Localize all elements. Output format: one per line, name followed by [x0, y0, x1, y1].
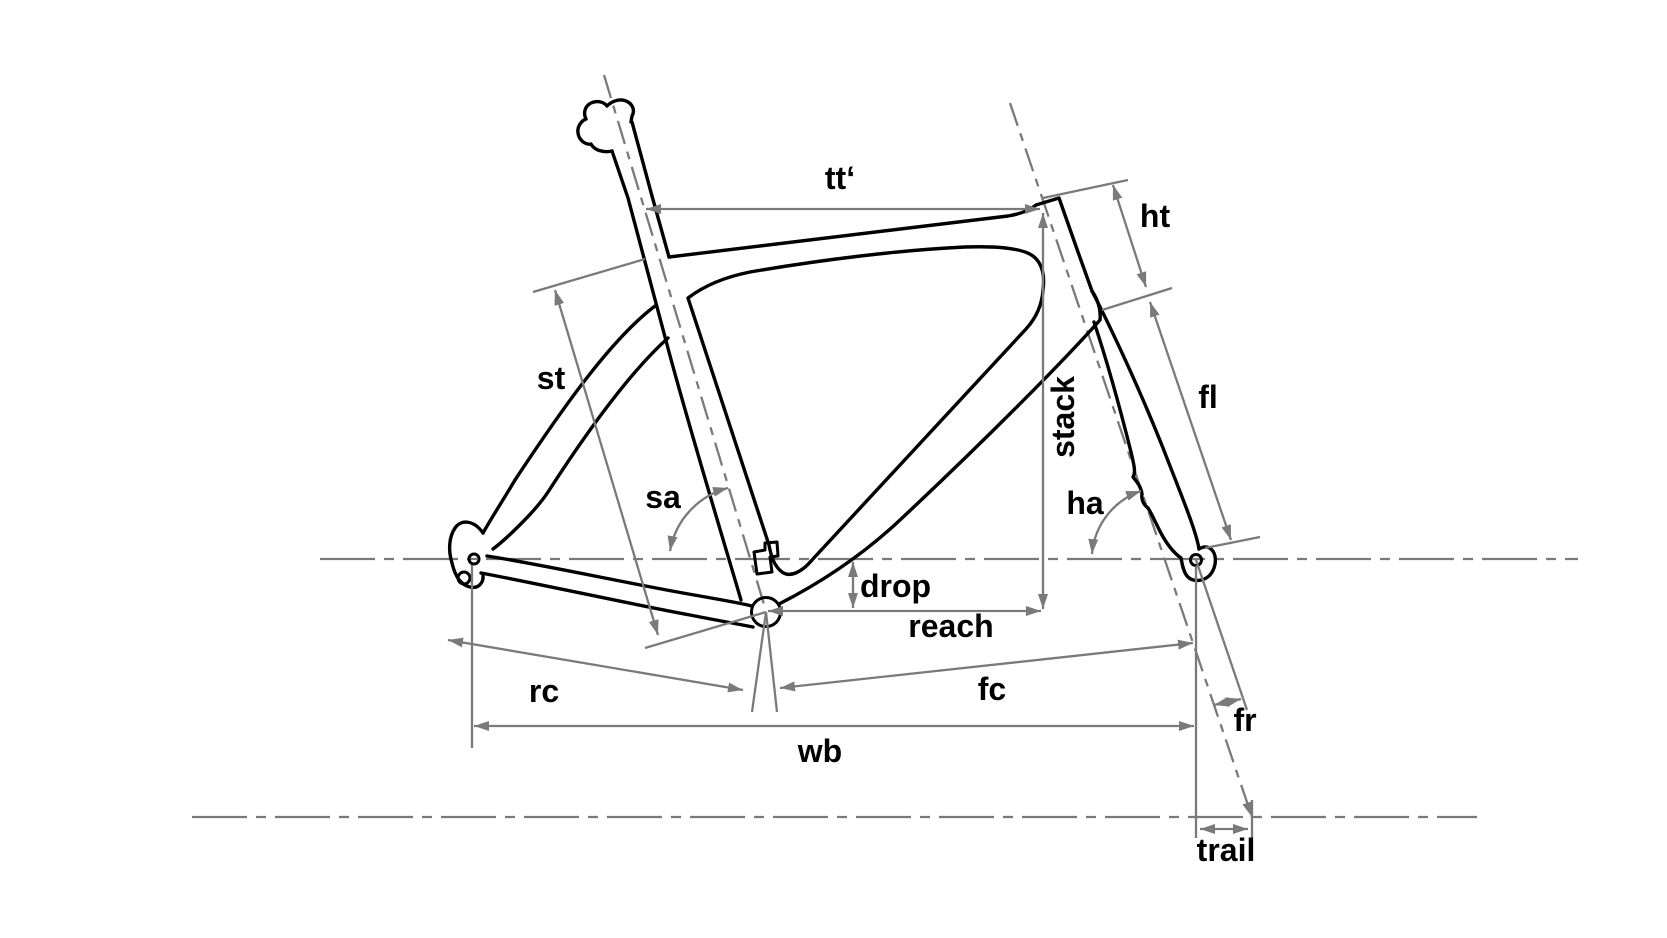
seat-tube-axis — [604, 75, 766, 611]
dim-seat-tube-line — [555, 290, 658, 635]
label-seat-tube: st — [537, 360, 566, 396]
dim-fork-length-tick-bottom — [1205, 537, 1260, 548]
label-fork-rake: fr — [1233, 702, 1256, 738]
dim-rear-center-line — [448, 640, 743, 690]
steering-axis — [1010, 103, 1252, 817]
dim-fork-length-line — [1150, 302, 1231, 540]
front-triangle-opening — [688, 247, 1044, 575]
label-trail: trail — [1197, 832, 1256, 868]
label-front-center: fc — [978, 671, 1006, 707]
dimension-lines — [448, 180, 1260, 838]
label-rear-center: rc — [529, 673, 559, 709]
label-fork-length: fl — [1198, 379, 1218, 415]
seat-stay-inner-edge — [493, 338, 668, 549]
dim-seat-tube-tick-top — [533, 259, 645, 292]
diagram-canvas: tt‘ ht fl st stack sa ha drop reach rc f… — [0, 0, 1667, 938]
fork-offset-parallel-line — [1196, 560, 1247, 710]
dimension-labels: tt‘ ht fl st stack sa ha drop reach rc f… — [529, 160, 1257, 868]
fork-front-edge — [1092, 291, 1199, 549]
label-top-tube: tt‘ — [825, 160, 855, 196]
label-reach: reach — [908, 608, 993, 644]
label-stack: stack — [1045, 376, 1081, 458]
label-bb-drop: drop — [860, 568, 931, 604]
label-wheelbase: wb — [797, 733, 842, 769]
bike-geometry-diagram: tt‘ ht fl st stack sa ha drop reach rc f… — [0, 0, 1667, 938]
dim-head-tube-tick-bottom — [1102, 288, 1172, 310]
label-head-tube: ht — [1140, 198, 1171, 234]
seatpost-head-outline — [578, 100, 634, 152]
reference-lines — [192, 75, 1578, 817]
label-head-angle: ha — [1066, 485, 1104, 521]
label-seat-angle: sa — [645, 479, 681, 515]
